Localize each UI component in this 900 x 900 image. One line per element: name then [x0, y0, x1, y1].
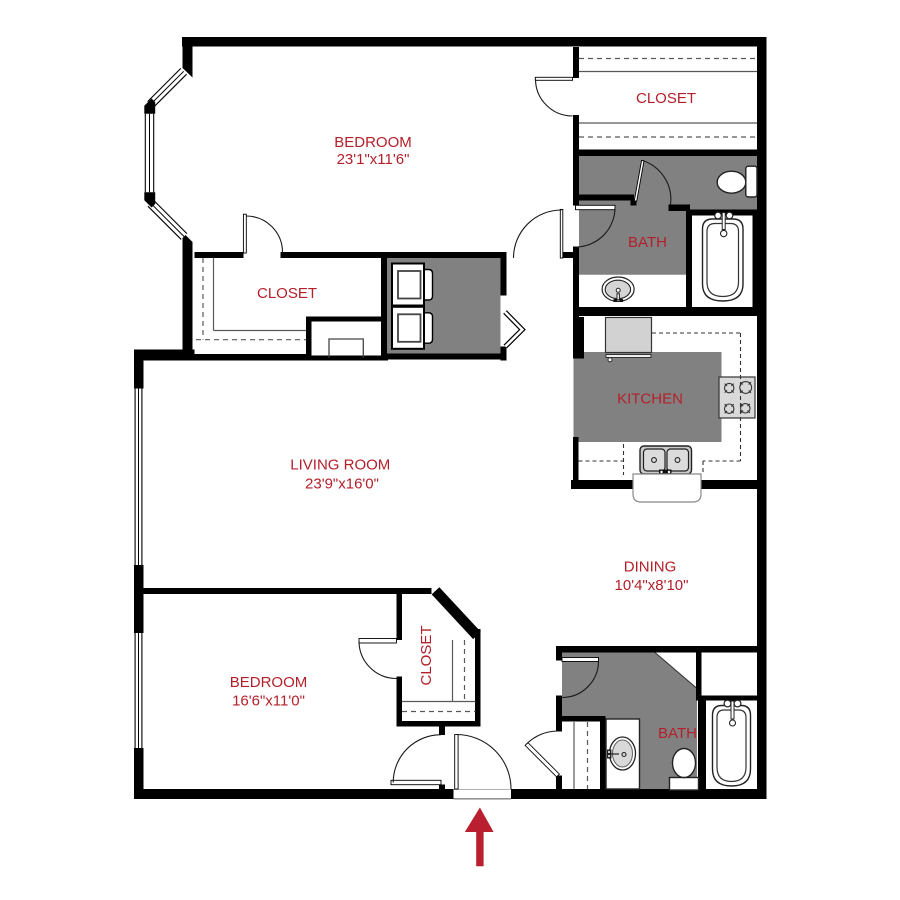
svg-text:23'1"x11'6": 23'1"x11'6" — [337, 151, 410, 168]
svg-text:BEDROOM: BEDROOM — [334, 134, 412, 151]
svg-text:BATH: BATH — [628, 234, 667, 251]
svg-text:BEDROOM: BEDROOM — [230, 674, 308, 691]
svg-text:BATH: BATH — [658, 725, 697, 742]
svg-text:KITCHEN: KITCHEN — [617, 391, 683, 408]
svg-text:CLOSET: CLOSET — [257, 285, 317, 302]
svg-text:CLOSET: CLOSET — [636, 90, 696, 107]
svg-text:16'6"x11'0": 16'6"x11'0" — [232, 693, 305, 710]
svg-text:LIVING ROOM: LIVING ROOM — [290, 456, 390, 473]
svg-text:DINING: DINING — [624, 559, 677, 576]
svg-text:CLOSET: CLOSET — [418, 625, 435, 685]
svg-text:23'9"x16'0": 23'9"x16'0" — [305, 476, 379, 493]
svg-text:10'4"x8'10": 10'4"x8'10" — [615, 577, 689, 594]
